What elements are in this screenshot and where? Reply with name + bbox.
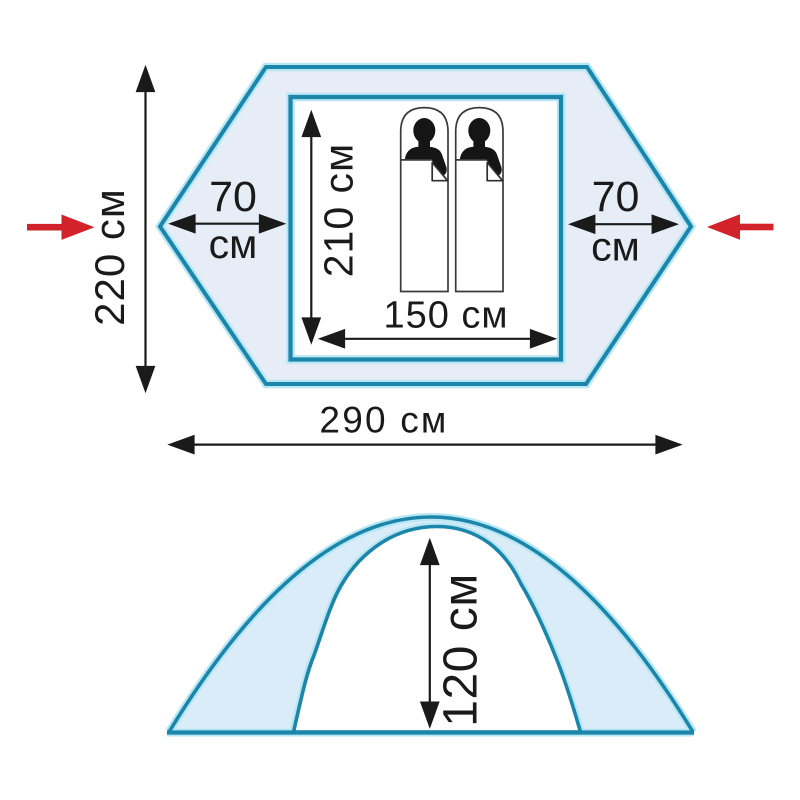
svg-text:см: см xyxy=(591,224,640,270)
svg-text:120 см: 120 см xyxy=(435,573,488,726)
svg-text:290 см: 290 см xyxy=(319,399,448,440)
svg-text:150 см: 150 см xyxy=(383,295,508,337)
svg-text:70: 70 xyxy=(592,173,640,221)
svg-text:см: см xyxy=(209,221,258,267)
svg-text:70: 70 xyxy=(209,173,257,221)
svg-text:220 см: 220 см xyxy=(86,188,133,326)
svg-text:210 см: 210 см xyxy=(316,143,362,278)
